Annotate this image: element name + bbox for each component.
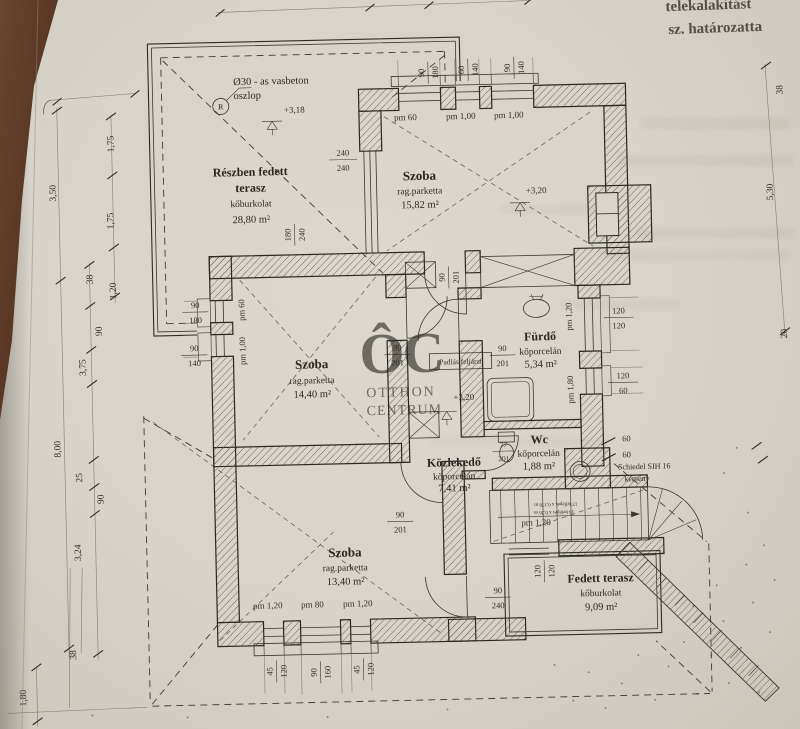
svg-text:60: 60 — [622, 433, 631, 443]
room-upper-terrace-material: kőburkolat — [230, 199, 272, 210]
svg-text:120: 120 — [616, 370, 629, 380]
parapet-bottom-2: pm 80 — [301, 599, 324, 610]
parapet-bottom-3: pm 1,20 — [343, 598, 373, 609]
svg-text:60: 60 — [622, 449, 631, 459]
svg-text:90: 90 — [437, 273, 447, 282]
watermark-line2: CENTRUM — [367, 403, 443, 420]
svg-text:90: 90 — [191, 300, 200, 310]
svg-text:1,75: 1,75 — [106, 212, 116, 229]
room-lower-terrace-name: Fedett terasz — [567, 570, 634, 586]
svg-text:90: 90 — [309, 668, 319, 677]
room-top-name: Szoba — [403, 168, 437, 184]
chimney-note-line2: kémény — [624, 474, 650, 484]
scanned-floorplan: Részben fedett terasz kőburkolat 28,80 m… — [0, 0, 800, 729]
svg-text:201: 201 — [394, 524, 407, 534]
bleed-heading-line2: sz. határozatta — [668, 19, 763, 38]
svg-text:20: 20 — [780, 329, 790, 339]
room-bath-material: kőporcelán — [519, 347, 562, 358]
room-wc-material: kőporcelán — [518, 449, 561, 460]
watermark-logo: ÔC — [359, 319, 443, 386]
room-hall-name: Közlekedő — [427, 455, 481, 470]
stair-note-line1: 17 fellépés x 0,178 m — [534, 500, 577, 506]
svg-text:45: 45 — [351, 665, 361, 674]
svg-text:140: 140 — [188, 358, 201, 368]
stair-note-line2: 16 belépés x 0,26 m — [534, 509, 574, 515]
chimney-note-line1: Schiedel SIH 16 — [618, 461, 671, 471]
watermark-line1: OTTHON — [366, 385, 436, 402]
svg-text:8,00: 8,00 — [53, 441, 63, 458]
svg-text:160: 160 — [322, 666, 332, 679]
svg-text:180: 180 — [283, 228, 293, 241]
room-mid-material: rag.parketta — [289, 376, 335, 387]
column-note-line2: oszlop — [233, 91, 261, 103]
svg-text:25: 25 — [75, 473, 85, 483]
parapet-bottom-1: pm 1,20 — [253, 600, 283, 611]
room-wc-area: 1,88 m² — [523, 461, 556, 473]
bleed-heading: telekalakítást sz. határozatta — [665, 0, 763, 38]
svg-text:77: 77 — [500, 440, 508, 449]
svg-text:240: 240 — [337, 163, 350, 173]
svg-text:180: 180 — [189, 315, 202, 325]
svg-text:120: 120 — [532, 565, 542, 578]
svg-text:3,75: 3,75 — [78, 359, 88, 376]
svg-text:140: 140 — [516, 61, 526, 74]
room-lower-terrace-area: 9,09 m² — [585, 602, 618, 614]
svg-text:120: 120 — [612, 305, 625, 315]
room-bath-area: 5,34 m² — [524, 359, 557, 371]
room-top-area: 15,82 m² — [401, 200, 439, 212]
room-upper-terrace-name2: terasz — [235, 180, 267, 195]
room-bottom-area: 13,40 m² — [327, 576, 365, 588]
room-lower-terrace-material: kőburkolat — [580, 588, 622, 599]
room-wc-name: Wc — [531, 432, 549, 446]
svg-text:240: 240 — [492, 600, 505, 610]
bleed-heading-line1: telekalakítást — [665, 0, 751, 15]
svg-text:90: 90 — [396, 509, 405, 519]
svg-text:3,50: 3,50 — [48, 185, 58, 202]
svg-text:120: 120 — [612, 320, 625, 330]
svg-text:120: 120 — [546, 565, 556, 578]
svg-text:3,24: 3,24 — [74, 544, 84, 561]
paving-dots — [86, 446, 779, 724]
svg-text:90: 90 — [95, 326, 105, 336]
svg-text:90: 90 — [493, 585, 502, 595]
svg-text:180: 180 — [430, 66, 440, 79]
room-bottom-name: Szoba — [328, 544, 362, 560]
svg-text:201: 201 — [498, 454, 510, 463]
room-mid-name: Szoba — [295, 356, 329, 372]
svg-text:38: 38 — [86, 274, 96, 284]
plan: Részben fedett terasz kőburkolat 28,80 m… — [0, 0, 800, 727]
column-mark-letter: R — [218, 102, 224, 111]
svg-text:120: 120 — [278, 665, 288, 678]
parapet-top-1: pm 60 — [394, 112, 417, 123]
watermark-otthon-centrum: ÔC OTTHON CENTRUM — [359, 319, 444, 419]
room-top-material: rag.parketta — [397, 186, 443, 197]
parapet-stairs: pm 1,20 — [521, 517, 551, 528]
room-upper-terrace-name1: Részben fedett — [213, 164, 288, 180]
svg-text:90: 90 — [190, 343, 199, 353]
svg-text:140: 140 — [470, 63, 480, 76]
parapet-west-2: pm 1,00 — [237, 337, 248, 365]
svg-text:1,75: 1,75 — [106, 135, 116, 152]
room-bath-name: Fürdő — [524, 329, 556, 344]
room-bottom-material: rag.parketta — [323, 563, 369, 574]
parapet-top-2: pm 1,00 — [446, 111, 476, 122]
staircase — [490, 486, 703, 545]
svg-text:90: 90 — [97, 494, 107, 504]
svg-text:1,20: 1,20 — [109, 282, 119, 299]
room-mid-area: 14,40 m² — [293, 389, 331, 401]
level-318: +3,18 — [284, 105, 306, 115]
column-note-line1: Ø30 - as vasbeton — [233, 75, 310, 88]
svg-text:45: 45 — [264, 667, 274, 676]
parapet-west-1: pm 60 — [236, 299, 246, 321]
room-upper-terrace-area: 28,80 m² — [232, 214, 270, 226]
washbasin — [523, 294, 550, 318]
svg-text:90: 90 — [416, 69, 426, 78]
parapet-east-2: pm 1,80 — [565, 376, 576, 404]
level-320-top: +3,20 — [526, 185, 548, 195]
level-320-hall: +3,20 — [453, 392, 475, 402]
svg-text:60: 60 — [456, 66, 466, 75]
attic-access-label: Padlás feljárat — [439, 357, 483, 367]
svg-text:201: 201 — [451, 271, 461, 284]
svg-text:60: 60 — [619, 385, 628, 395]
room-hall-material: kőporcelán — [433, 472, 476, 483]
svg-text:120: 120 — [365, 663, 375, 676]
bathtub — [487, 377, 534, 421]
parapet-east-1: pm 1,20 — [563, 303, 574, 331]
parapet-top-3: pm 1,00 — [494, 110, 524, 121]
svg-text:240: 240 — [297, 228, 307, 241]
svg-text:90: 90 — [502, 64, 512, 73]
svg-text:240: 240 — [336, 148, 349, 158]
room-hall-area: 7,41 m² — [438, 483, 471, 495]
svg-text:38: 38 — [775, 85, 785, 95]
svg-text:201: 201 — [496, 358, 509, 368]
chimney-block — [565, 448, 611, 489]
svg-text:38: 38 — [69, 650, 79, 660]
svg-text:90: 90 — [498, 343, 507, 353]
svg-text:5,30: 5,30 — [766, 183, 776, 200]
